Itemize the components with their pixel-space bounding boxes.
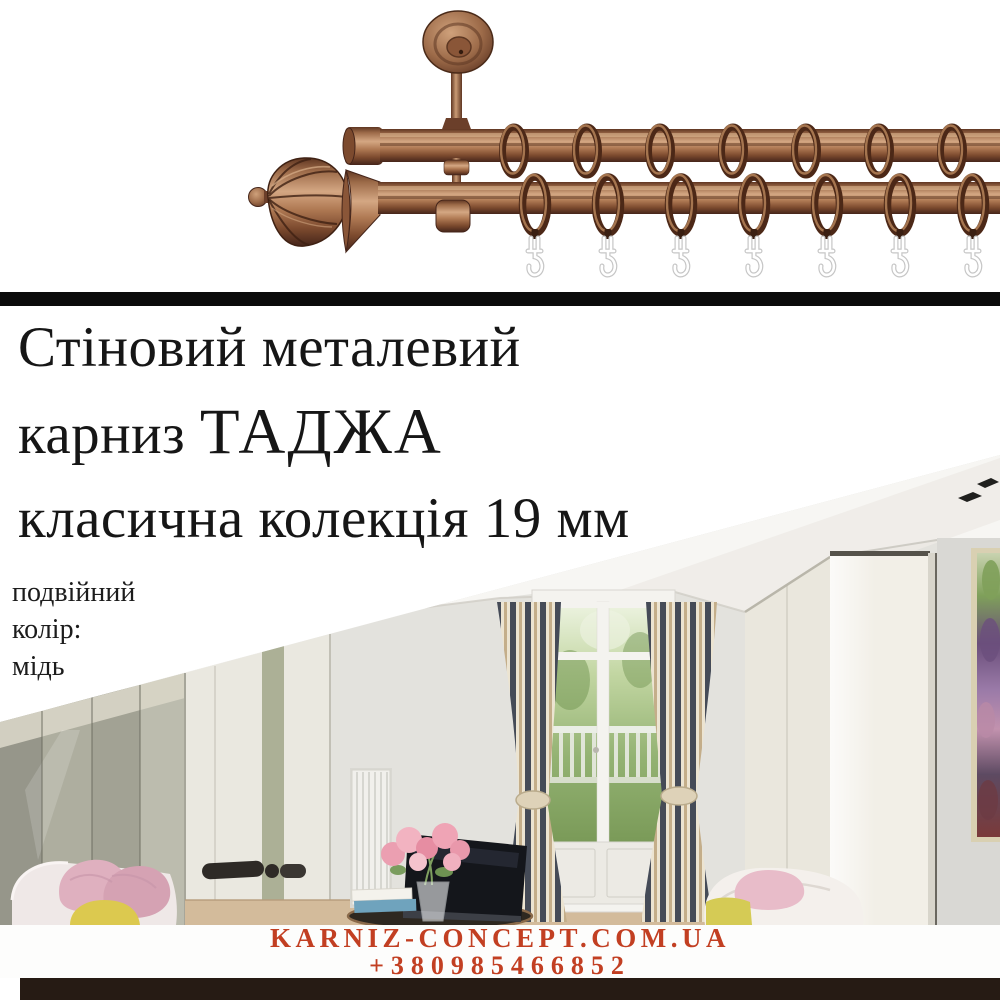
curtain-tieback (516, 791, 550, 809)
rod-clamp (436, 200, 470, 232)
footer-website-text: KARNIZ-CONCEPT.COM.UA (270, 925, 730, 952)
footer-band: KARNIZ-CONCEPT.COM.UA +380985466852 (0, 925, 1000, 978)
flower-vase (417, 882, 449, 921)
promo-image: Стіновий металевий карниз ТАДЖА класична… (0, 0, 1000, 1000)
product-photo (0, 0, 1000, 290)
room-door (185, 634, 330, 925)
wall-bracket (423, 11, 493, 132)
curtain-tieback (661, 787, 697, 805)
title-line-1: Стіновий металевий (18, 306, 918, 390)
books (352, 888, 417, 913)
footer-phone-text: +380985466852 (369, 953, 631, 979)
wall-art (971, 548, 1000, 842)
bottom-bar (20, 978, 1000, 1000)
divider-bar (0, 292, 1000, 306)
yellow-pillow (706, 898, 752, 926)
finial (249, 158, 381, 252)
interior-photo (0, 430, 1000, 925)
radiator (350, 768, 392, 908)
curtain-hooks (528, 238, 980, 275)
sofa (12, 860, 177, 925)
